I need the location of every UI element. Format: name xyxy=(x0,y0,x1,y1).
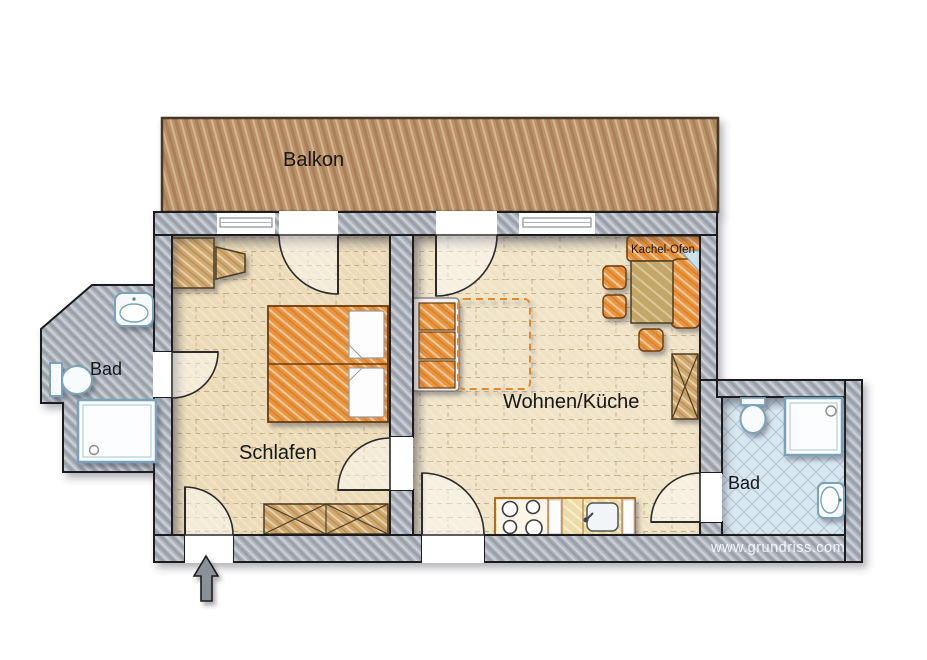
shower xyxy=(78,400,156,462)
window-living xyxy=(519,213,595,234)
room-label-balkon: Balkon xyxy=(283,149,344,171)
opening-entrance xyxy=(185,534,233,563)
bedroom-wardrobe xyxy=(264,504,388,534)
washbasin xyxy=(818,483,844,518)
opening-living-door xyxy=(422,534,484,563)
wall-bottom-2 xyxy=(233,535,422,562)
opening-bath-left-door xyxy=(153,352,173,397)
double-bed xyxy=(268,306,388,422)
watermark: www.grundriss.com xyxy=(710,540,845,556)
toilet xyxy=(741,398,766,433)
chair xyxy=(639,329,663,351)
opening-balcony-door-bedroom xyxy=(279,211,338,236)
bath-right-wall-right xyxy=(845,380,862,562)
toilet xyxy=(50,363,92,396)
kitchen-sink xyxy=(584,503,619,531)
room-label-schlafen: Schlafen xyxy=(239,442,317,464)
room-label-bad-left: Bad xyxy=(90,359,122,379)
room-label-bad-right: Bad xyxy=(728,473,760,493)
dining-table xyxy=(631,261,673,323)
floor-plan: Balkon Schlafen Wohnen/Küche Bad Bad Kac… xyxy=(0,0,927,660)
window-bedroom xyxy=(217,213,275,234)
desk xyxy=(172,238,214,288)
kitchen-counter xyxy=(495,498,635,536)
wall-bottom-1 xyxy=(154,535,185,562)
stove-burners xyxy=(497,500,547,536)
balcony xyxy=(162,118,718,212)
washbasin xyxy=(115,293,153,326)
chair xyxy=(603,266,626,289)
opening-bath-right-door xyxy=(700,473,722,522)
shower xyxy=(785,398,842,455)
annotation-kachel-ofen: Kachel-Ofen xyxy=(631,244,695,256)
wall-middle-lower xyxy=(390,490,413,535)
sofa xyxy=(412,298,459,391)
chair xyxy=(603,295,626,318)
wall-left-upper xyxy=(154,235,172,352)
wall-middle-upper xyxy=(390,235,413,437)
living-wardrobe xyxy=(672,354,698,419)
room-label-wohnen-kueche: Wohnen/Küche xyxy=(503,391,639,413)
bath-right-wall-top xyxy=(717,380,862,397)
opening-balcony-door-living xyxy=(436,211,497,236)
wall-right-upper xyxy=(700,235,717,380)
balcony-deck xyxy=(162,118,718,212)
opening-middle-door xyxy=(390,437,413,490)
wall-right-lower xyxy=(700,522,722,535)
